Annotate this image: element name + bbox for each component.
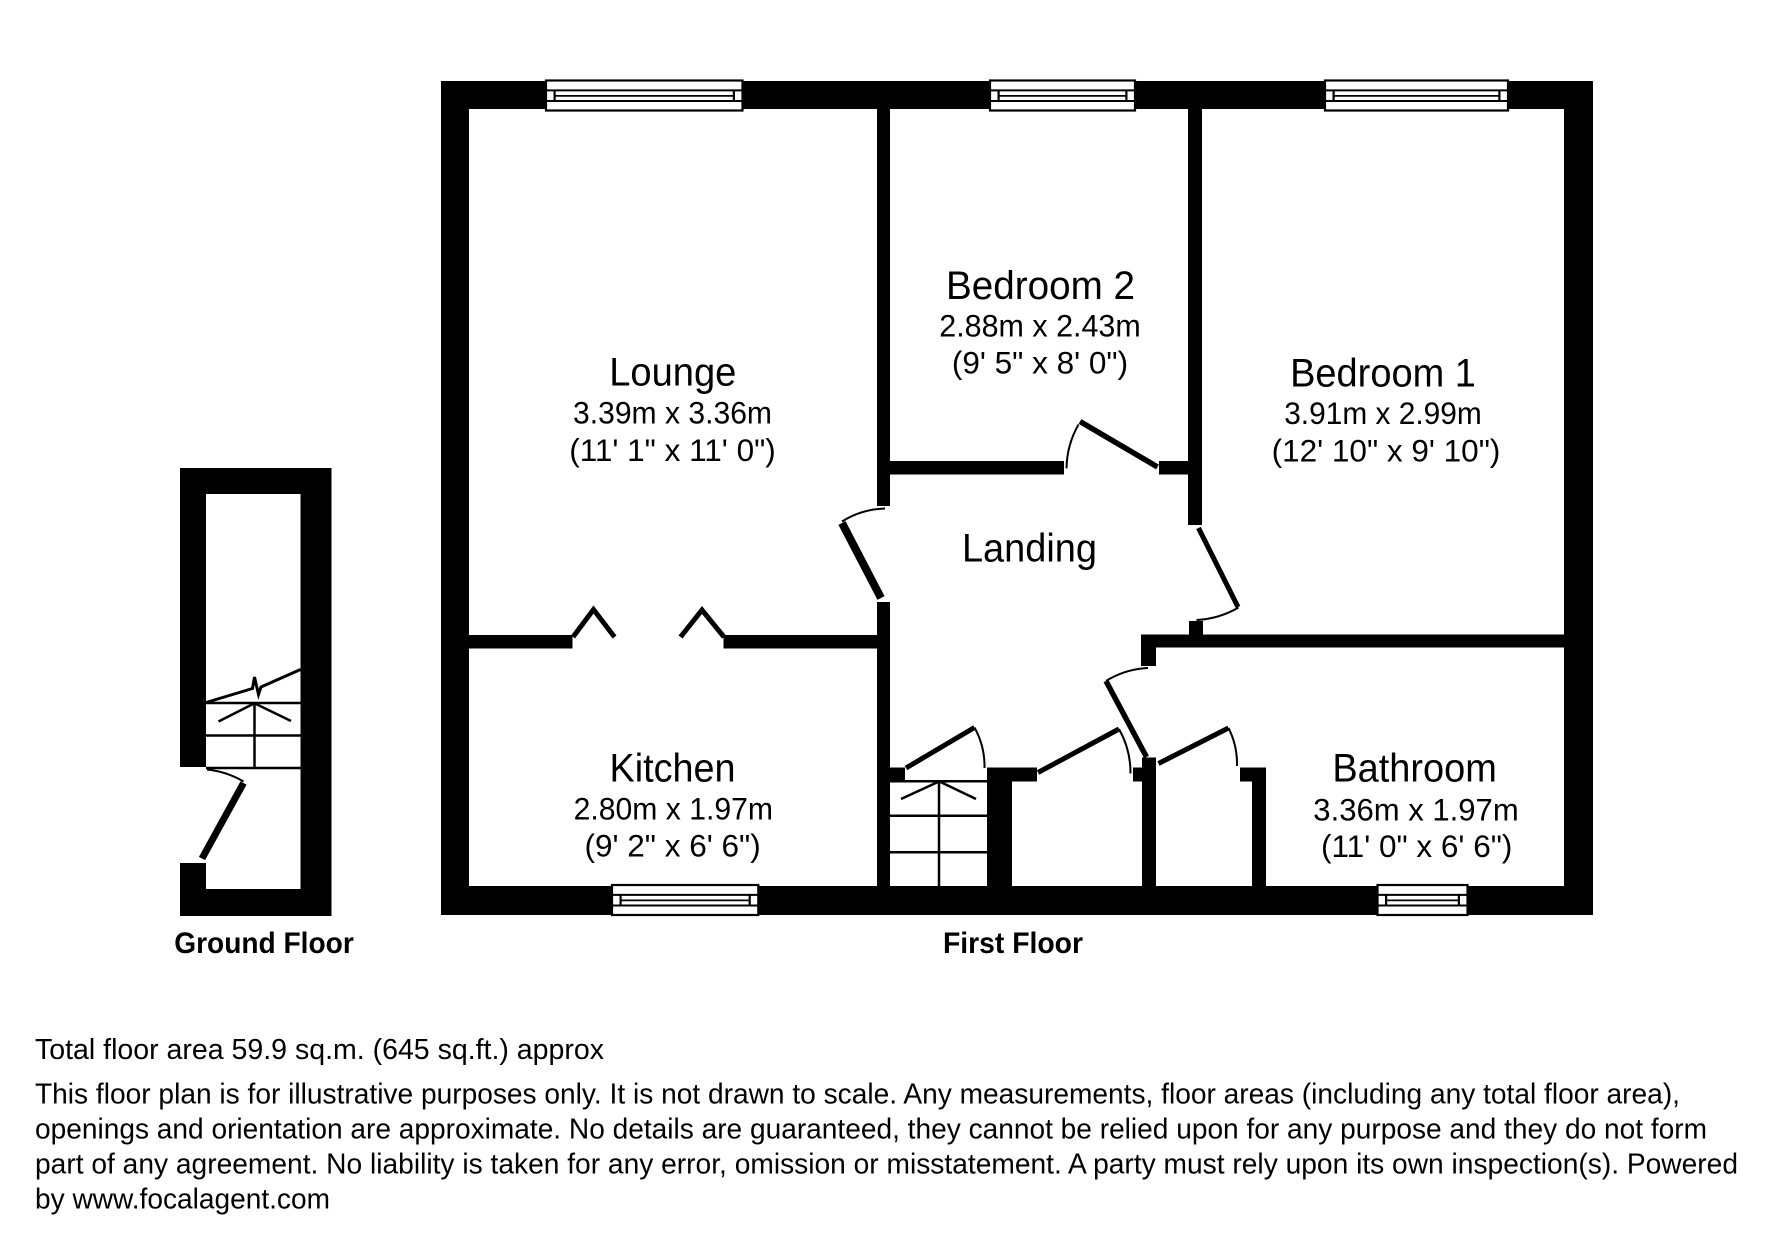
- svg-text:3.91m x 2.99m: 3.91m x 2.99m: [1284, 395, 1482, 431]
- svg-text:(11' 1" x 11' 0"): (11' 1" x 11' 0"): [569, 432, 776, 468]
- svg-text:Bedroom 1: Bedroom 1: [1290, 352, 1476, 396]
- svg-text:Bathroom: Bathroom: [1332, 746, 1497, 790]
- svg-text:Total floor area 59.9 sq.m. (6: Total floor area 59.9 sq.m. (645 sq.ft.)…: [35, 1034, 604, 1066]
- svg-text:2.88m x 2.43m: 2.88m x 2.43m: [939, 307, 1141, 343]
- svg-text:This floor plan is for illustr: This floor plan is for illustrative purp…: [35, 1079, 1680, 1111]
- svg-text:Lounge: Lounge: [609, 351, 736, 395]
- svg-text:openings and orientation are a: openings and orientation are approximate…: [35, 1114, 1707, 1146]
- svg-text:Ground Floor: Ground Floor: [174, 927, 354, 960]
- svg-text:2.80m x 1.97m: 2.80m x 1.97m: [574, 791, 773, 827]
- svg-text:(9' 2" x 6' 6"): (9' 2" x 6' 6"): [584, 828, 760, 864]
- svg-text:3.36m x 1.97m: 3.36m x 1.97m: [1313, 792, 1518, 828]
- svg-text:(9' 5" x 8' 0"): (9' 5" x 8' 0"): [952, 345, 1128, 381]
- svg-text:Kitchen: Kitchen: [610, 746, 736, 790]
- svg-text:(11' 0" x 6' 6"): (11' 0" x 6' 6"): [1321, 828, 1512, 864]
- svg-text:by www.focalagent.com: by www.focalagent.com: [35, 1184, 330, 1216]
- svg-text:3.39m x 3.36m: 3.39m x 3.36m: [573, 395, 772, 431]
- svg-text:(12' 10" x 9' 10"): (12' 10" x 9' 10"): [1272, 432, 1501, 468]
- svg-text:First Floor: First Floor: [943, 927, 1083, 960]
- svg-text:part of any agreement. No liab: part of any agreement. No liability is t…: [35, 1149, 1738, 1181]
- svg-text:Landing: Landing: [962, 526, 1097, 570]
- svg-text:Bedroom 2: Bedroom 2: [946, 264, 1135, 308]
